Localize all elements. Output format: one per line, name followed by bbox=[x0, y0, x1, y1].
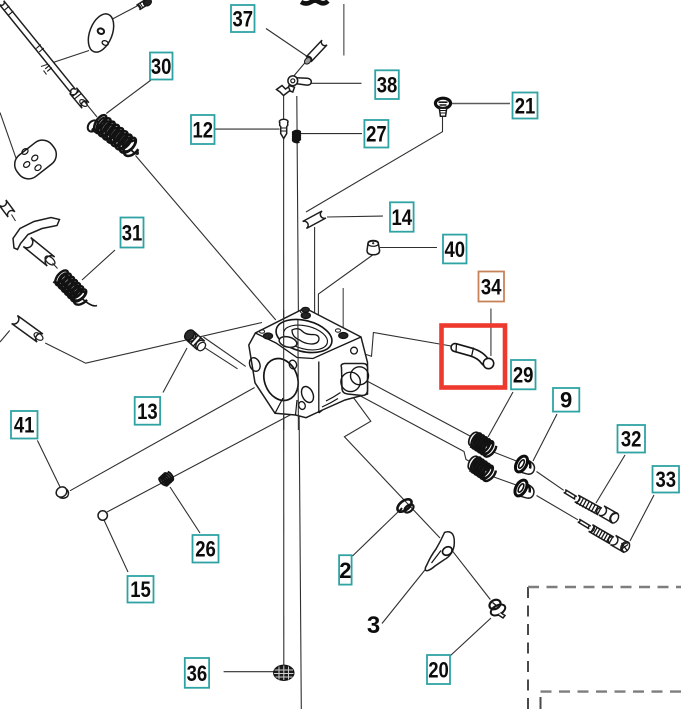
svg-text:20: 20 bbox=[428, 657, 449, 682]
svg-text:32: 32 bbox=[621, 427, 642, 452]
svg-text:12: 12 bbox=[193, 117, 214, 142]
svg-text:34: 34 bbox=[481, 274, 502, 299]
svg-text:33: 33 bbox=[656, 467, 677, 492]
svg-text:14: 14 bbox=[392, 205, 413, 230]
svg-text:41: 41 bbox=[14, 413, 35, 438]
svg-text:40: 40 bbox=[445, 237, 466, 262]
svg-text:13: 13 bbox=[137, 399, 158, 424]
svg-text:29: 29 bbox=[513, 363, 534, 388]
svg-text:30: 30 bbox=[151, 54, 172, 79]
svg-text:2: 2 bbox=[339, 558, 351, 583]
svg-text:27: 27 bbox=[366, 122, 387, 147]
svg-text:38: 38 bbox=[377, 73, 398, 98]
svg-text:26: 26 bbox=[195, 537, 216, 562]
svg-text:21: 21 bbox=[515, 93, 536, 118]
svg-text:31: 31 bbox=[122, 220, 143, 245]
svg-text:36: 36 bbox=[187, 661, 208, 686]
svg-text:3: 3 bbox=[367, 612, 380, 639]
svg-text:9: 9 bbox=[560, 388, 572, 413]
svg-text:15: 15 bbox=[130, 577, 151, 602]
svg-text:37: 37 bbox=[233, 6, 254, 31]
